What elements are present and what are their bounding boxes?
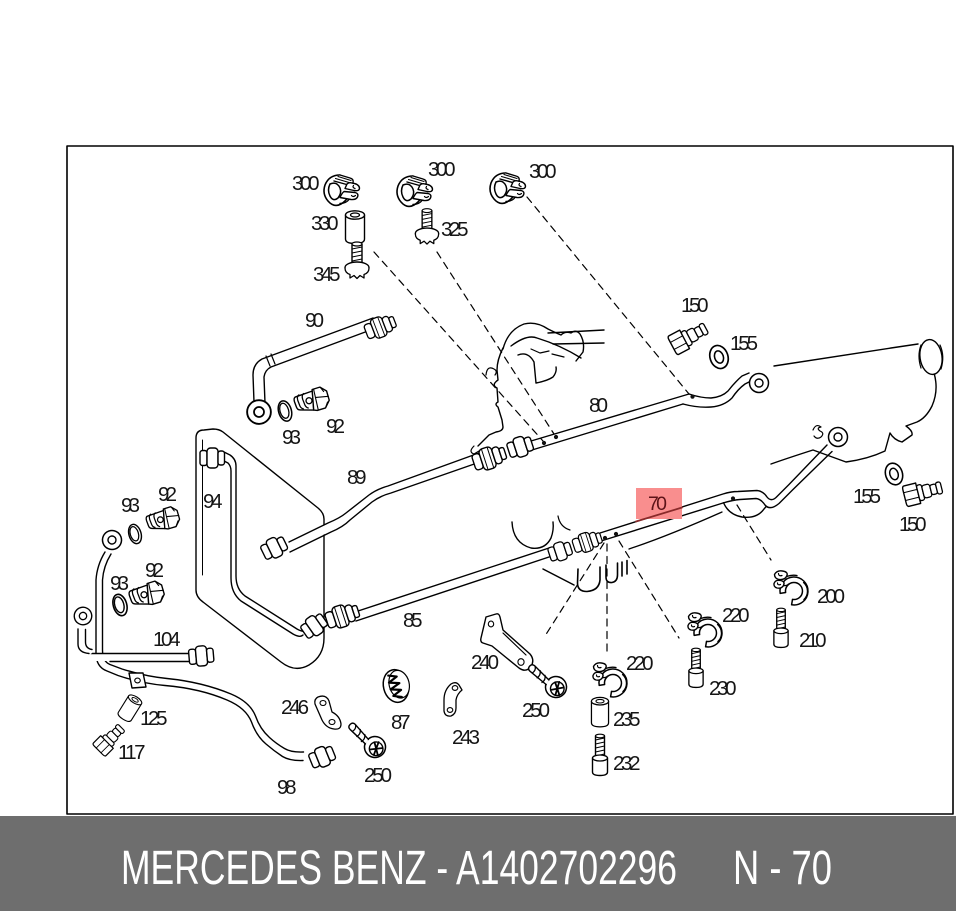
svg-text:117: 117 — [118, 741, 146, 764]
svg-text:70: 70 — [648, 493, 667, 515]
svg-text:92: 92 — [158, 483, 177, 506]
svg-text:MERCEDES BENZ - A1402702296: MERCEDES BENZ - A1402702296 — [121, 842, 677, 895]
svg-text:104: 104 — [153, 628, 181, 651]
svg-text:220: 220 — [722, 604, 750, 627]
svg-text:90: 90 — [305, 309, 324, 332]
svg-text:93: 93 — [110, 572, 129, 595]
svg-text:250: 250 — [522, 699, 550, 722]
svg-text:232: 232 — [613, 752, 641, 775]
svg-text:250: 250 — [364, 764, 392, 787]
svg-text:300: 300 — [529, 160, 557, 183]
svg-text:330: 330 — [311, 212, 339, 235]
svg-text:85: 85 — [403, 609, 423, 632]
svg-text:80: 80 — [589, 394, 608, 417]
svg-text:200: 200 — [817, 585, 845, 608]
svg-text:345: 345 — [313, 263, 341, 286]
svg-text:92: 92 — [326, 415, 345, 438]
svg-text:87: 87 — [391, 711, 411, 734]
svg-text:150: 150 — [681, 294, 709, 317]
svg-text:89: 89 — [347, 466, 367, 489]
svg-text:300: 300 — [428, 158, 456, 181]
svg-text:155: 155 — [853, 485, 881, 508]
svg-text:150: 150 — [899, 513, 927, 536]
svg-text:220: 220 — [626, 652, 654, 675]
svg-text:92: 92 — [145, 559, 164, 582]
svg-text:325: 325 — [441, 218, 469, 241]
svg-text:210: 210 — [799, 629, 827, 652]
svg-text:243: 243 — [452, 726, 480, 749]
svg-text:230: 230 — [709, 677, 737, 700]
svg-text:240: 240 — [471, 651, 499, 674]
svg-text:N - 70: N - 70 — [733, 842, 832, 895]
svg-text:98: 98 — [277, 776, 297, 799]
svg-text:93: 93 — [121, 494, 140, 517]
svg-text:246: 246 — [281, 696, 309, 719]
svg-text:300: 300 — [292, 172, 320, 195]
svg-text:93: 93 — [282, 426, 301, 449]
svg-text:235: 235 — [613, 708, 641, 731]
svg-text:94: 94 — [203, 490, 223, 513]
svg-text:125: 125 — [140, 707, 168, 730]
svg-text:155: 155 — [730, 332, 758, 355]
